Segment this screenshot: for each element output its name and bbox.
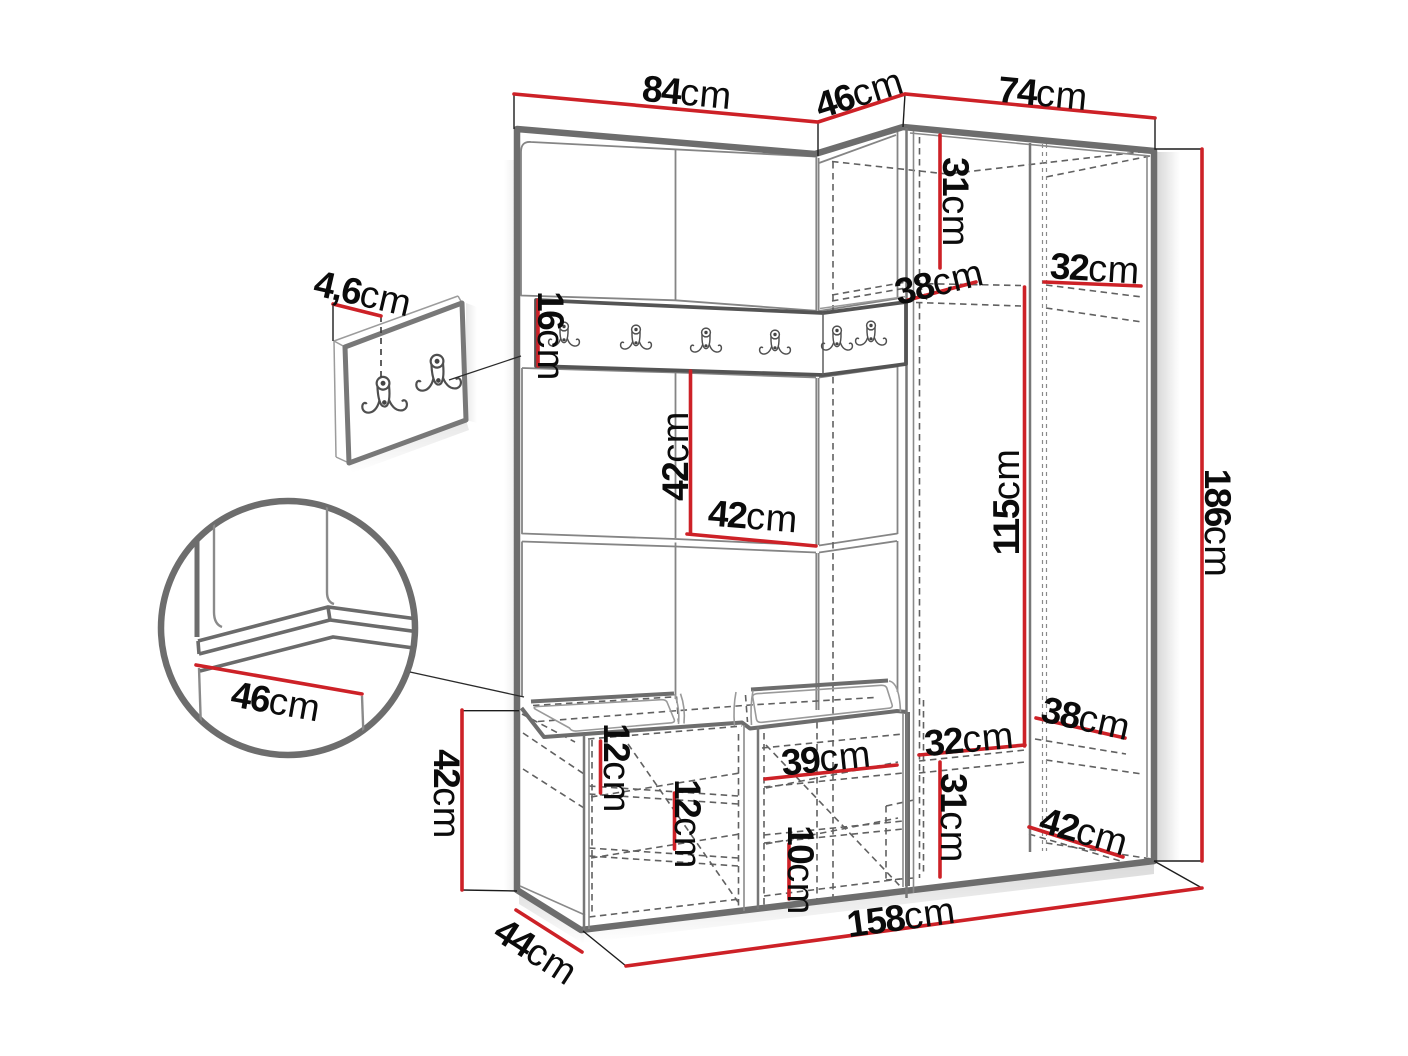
svg-text:42cm: 42cm <box>655 411 697 501</box>
svg-text:42cm: 42cm <box>707 493 800 542</box>
svg-text:32cm: 32cm <box>922 715 1015 765</box>
svg-text:115cm: 115cm <box>986 449 1028 556</box>
svg-text:12cm: 12cm <box>666 779 708 869</box>
svg-text:16cm: 16cm <box>529 291 571 381</box>
svg-text:186cm: 186cm <box>1196 469 1238 578</box>
svg-text:32cm: 32cm <box>1049 245 1141 292</box>
svg-text:31cm: 31cm <box>932 773 974 863</box>
svg-text:42cm: 42cm <box>425 749 467 839</box>
svg-text:31cm: 31cm <box>934 157 976 247</box>
svg-text:10cm: 10cm <box>779 825 821 915</box>
svg-text:12cm: 12cm <box>595 723 637 813</box>
